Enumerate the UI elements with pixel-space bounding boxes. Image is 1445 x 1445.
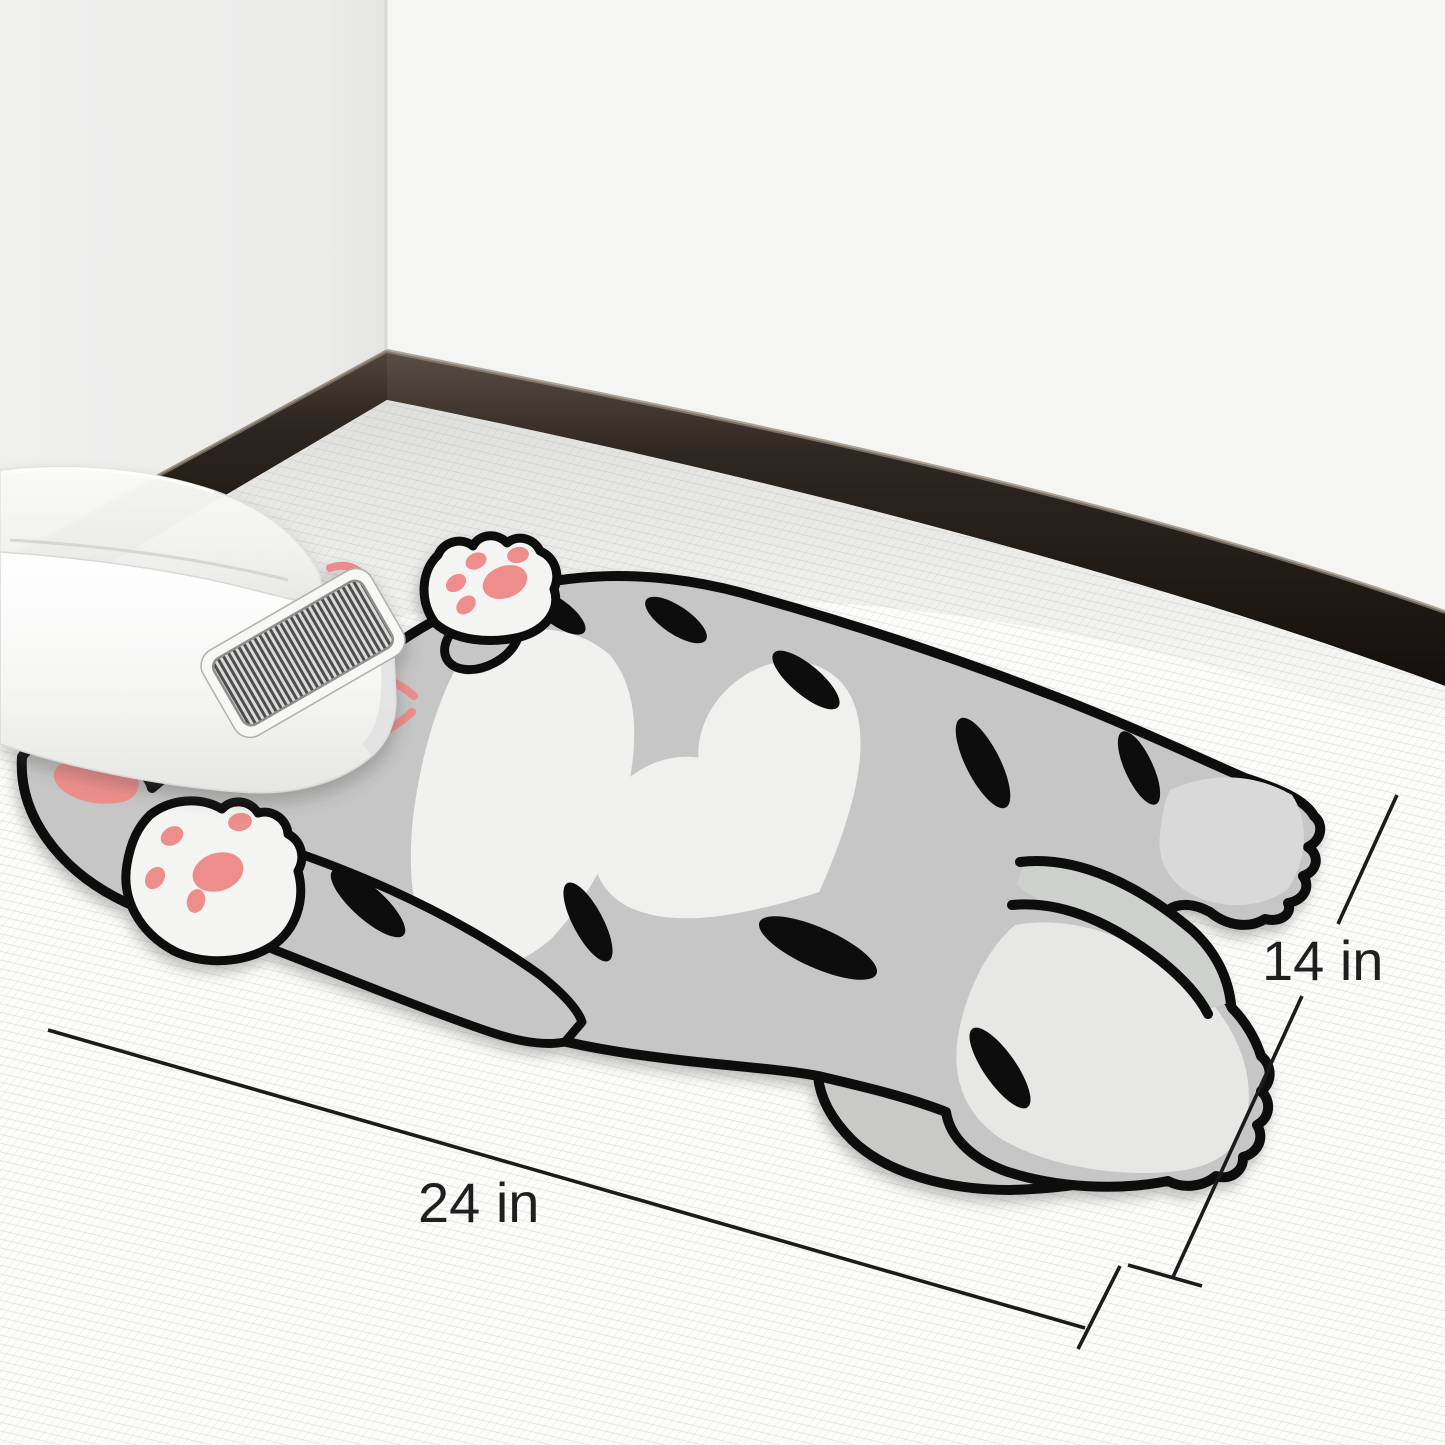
product-photo-scene: 24 in 14 in [0,0,1445,1445]
scene-svg: 24 in 14 in [0,0,1445,1445]
height-dimension-label: 14 in [1262,929,1383,992]
cat-upper-hind-foot [1159,777,1303,905]
width-dimension-label: 24 in [418,1171,539,1234]
